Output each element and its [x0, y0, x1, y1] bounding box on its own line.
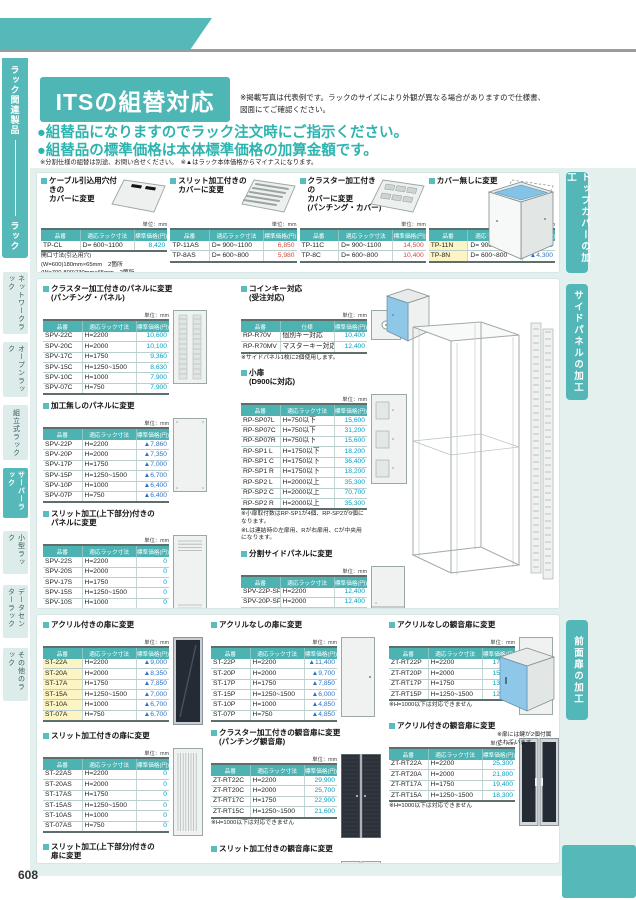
rack-size-cell: H=1750: [82, 460, 136, 470]
part-number-cell: RP-SP07R: [241, 436, 280, 446]
table-row: ST-10AH=1000▲6,700: [43, 700, 169, 710]
product-block: クラスター加工付きのカバーに変更(パンチング・カバー)単位：mm品番適応ラック寸…: [300, 177, 426, 263]
column-header: 適応ラック寸法: [428, 748, 482, 760]
bullet-square-icon: [43, 403, 49, 409]
part-number-cell: RP-SP2 L: [241, 478, 280, 488]
column-header: 標準価格(円): [393, 229, 426, 241]
unit-label: 単位：mm: [241, 567, 367, 575]
block-title-lines: スリット加工付きの観音扉に変更: [219, 845, 333, 854]
rack-size-cell: H=2000: [280, 597, 334, 607]
price-cell: 35,300: [334, 499, 367, 510]
rack-size-cell: H=750: [82, 821, 136, 832]
table-row: ZT-RT22AH=220025,300: [389, 760, 515, 770]
table-row: SPV-15SH=1250~15000: [43, 588, 169, 598]
front-door-section: アクリル付きの扉に変更単位：mm品番適応ラック寸法標準価格(円)ST-22AH=…: [36, 614, 560, 864]
part-number-cell: ST-22AS: [43, 770, 82, 780]
header-row: 品番適応ラック寸法標準価格(円): [300, 229, 426, 241]
bullet-square-icon: [241, 286, 247, 292]
unit-label: 単位：mm: [211, 755, 337, 763]
price-cell: ▲4,850: [304, 710, 337, 721]
rack-size-cell: H=1250~1500: [250, 690, 304, 700]
sidebar-item-label: ネットワークラック: [6, 275, 26, 331]
bullet-square-icon: [429, 178, 435, 184]
cabinet-front-view-image: [497, 645, 557, 728]
section-label-top-cover: トップカバーの加工: [566, 172, 588, 273]
part-number-cell: RP-SP2 R: [241, 499, 280, 510]
sidebar-item: ネットワークラック: [3, 272, 28, 334]
unit-label: 単位：mm: [43, 311, 169, 319]
column-header: 標準価格(円): [334, 576, 367, 588]
table-with-image: 単位：mm品番適応ラック寸法標準価格(円)ST-22AH=2200▲9,000S…: [43, 637, 201, 725]
table-row: SPV-20SH=20000: [43, 567, 169, 577]
cabinet-top-view-image: [487, 179, 555, 273]
bullet-square-icon: [43, 286, 49, 292]
column-header: 品番: [211, 647, 250, 659]
block-column: クラスター加工付きのパネルに変更(パンチング・パネル)単位：mm品番適応ラック寸…: [43, 285, 231, 609]
column-header: 標準価格(円): [304, 764, 337, 776]
part-number-cell: SPV-20S: [43, 567, 82, 577]
table-area: 単位：mm品番適応ラック寸法標準価格(円)ZT-RT22AH=220025,30…: [389, 738, 515, 811]
sidebar-item: サーバーラック: [3, 468, 28, 518]
price-cell: 21,800: [482, 770, 515, 780]
table-row: ST-10ASH=10000: [43, 811, 169, 821]
table-note: (W=600)180mm×65mm 2箇所: [41, 262, 167, 270]
front-door-columns: アクリル付きの扉に変更単位：mm品番適応ラック寸法標準価格(円)ST-22AH=…: [37, 615, 559, 864]
column-header: 品番: [241, 404, 280, 416]
price-cell: ▲7,850: [136, 679, 169, 689]
price-cell: ▲9,000: [136, 659, 169, 669]
bottom-right-accent: [562, 845, 636, 898]
table-row: RP-SP2 RH=2000以上35,300: [241, 499, 367, 510]
product-table: 品番適応ラック寸法標準価格(円)SPV-22P-SPH=220012,400SP…: [241, 575, 367, 609]
price-cell: ▲7,000: [136, 690, 169, 700]
part-number-cell: ST-22P: [211, 659, 250, 669]
price-cell: ▲6,700: [136, 710, 169, 721]
rack-size-cell: D= 900~1100: [339, 241, 393, 251]
table-row: SPV-10SH=10000: [43, 598, 169, 608]
rack-size-cell: H=2200: [82, 332, 136, 342]
top-cover-blocks: ケーブル引込用穴付きのカバーに変更単位：mm品番適応ラック寸法標準価格(円)TP…: [37, 173, 559, 273]
table-row: SPV-22P-SPH=220012,400: [241, 588, 367, 598]
table-note: (W=700-800)230mm×65mm 2箇所: [41, 270, 167, 273]
rack-size-cell: H=2000: [82, 567, 136, 577]
part-number-cell: TP-11N: [429, 241, 468, 251]
column-header: 適応ラック寸法: [82, 320, 136, 332]
price-cell: 0: [136, 780, 169, 790]
rack-size-cell: H=2000: [82, 450, 136, 460]
column-header: 品番: [300, 229, 339, 241]
part-number-cell: SPV-07P: [43, 491, 82, 502]
header-rule: [0, 49, 636, 52]
door-double-acrylic-image: [519, 738, 559, 826]
block-title: スリット加工(上下部分)付きの扉に変更: [43, 843, 201, 861]
column-header: 適応ラック寸法: [82, 647, 136, 659]
unit-label: 単位：mm: [43, 536, 169, 544]
column-header: 標準価格(円): [136, 758, 169, 770]
part-number-cell: RP-SP1 R: [241, 467, 280, 477]
part-number-cell: ZT-RT15C: [211, 807, 250, 818]
table-row: ZT-RT17CH=175022,900: [211, 796, 337, 806]
header-row: 品番適応ラック寸法標準価格(円): [389, 748, 515, 760]
table-row: ST-20ASH=20000: [43, 780, 169, 790]
rack-size-cell: H=1000: [82, 481, 136, 491]
table-area: 単位：mm品番適応ラック寸法標準価格(円)SPV-22P-SPH=220012,…: [241, 566, 367, 609]
part-number-cell: RP-R70MV: [241, 342, 280, 353]
table-row: SPV-10PH=1000▲6,400: [43, 481, 169, 491]
product-table: 品番適応ラック寸法標準価格(円)ST-22PH=2200▲11,400ST-20…: [211, 646, 337, 722]
bullet-square-icon: [43, 622, 49, 628]
front-cabinet-figure: ※扉には鍵が2個付属されています。: [497, 645, 557, 748]
part-number-cell: SPV-20P-SP: [241, 597, 280, 607]
table-area: 単位：mm品番適応ラック寸法標準価格(円)ZT-RT22CH=220029,90…: [211, 754, 337, 827]
key-note: ※扉には鍵が2個付属されています。: [497, 732, 557, 748]
price-cell: 9,360: [136, 352, 169, 362]
rack-size-cell: H=1250~1500: [82, 690, 136, 700]
part-number-cell: TP-11C: [300, 241, 339, 251]
block-title-lines: アクリル付きの扉に変更: [51, 621, 134, 630]
column-header: 品番: [241, 320, 280, 332]
rack-size-cell: D= 600~800: [209, 251, 263, 262]
rack-size-cell: H=750: [82, 710, 136, 721]
table-row: RP-SP1 LH=1750以下18,200: [241, 447, 367, 457]
column-header: 品番: [43, 545, 82, 557]
rack-size-cell: H=2000以上: [280, 478, 334, 488]
part-number-cell: SPV-22P-SP: [241, 588, 280, 598]
rack-size-cell: H=2000: [82, 669, 136, 679]
column-header: 標準価格(円): [304, 647, 337, 659]
table-row: ST-07PH=750▲4,850: [211, 710, 337, 721]
block-title-line: (パンチング・パネル): [51, 294, 172, 303]
block-title-line: 加工無しのパネルに変更: [51, 402, 135, 411]
table-area: 単位：mm品番適応ラック寸法標準価格(円)ST-22ASH=22000ST-20…: [43, 748, 169, 833]
bullet-square-icon: [300, 178, 306, 184]
rack-size-cell: H=2200: [428, 760, 482, 770]
price-cell: 10,100: [136, 342, 169, 352]
rack-size-cell: H=1250~1500: [428, 690, 482, 701]
column-header: 適応ラック寸法: [82, 428, 136, 440]
price-cell: 19,400: [482, 780, 515, 790]
table-row: ST-10PH=1000▲4,850: [211, 700, 337, 710]
price-cell: 15,600: [334, 436, 367, 446]
bullet-square-icon: [389, 622, 395, 628]
bullet-square-icon: [241, 370, 247, 376]
section-label-text: トップカバーの加工: [563, 172, 591, 273]
part-number-cell: ZT-RT17A: [389, 780, 428, 790]
rack-size-cell: H=2200: [250, 659, 304, 669]
header-row: 品番適応ラック寸法標準価格(円): [43, 428, 169, 440]
table-row: ST-17PH=1750▲7,850: [211, 679, 337, 689]
table-row: ZT-RT20AH=200021,800: [389, 770, 515, 780]
part-number-cell: SPV-22C: [43, 332, 82, 342]
sidebar-item-label: データセンターラック: [6, 588, 26, 635]
table-row: SPV-20CH=200010,100: [43, 342, 169, 352]
price-cell: 18,300: [482, 791, 515, 802]
part-number-cell: ST-20AS: [43, 780, 82, 790]
rack-size-cell: H=2200: [428, 659, 482, 669]
table-row: ST-15PH=1250~1500▲6,000: [211, 690, 337, 700]
block-title-line: パネルに変更: [51, 519, 155, 528]
rack-size-cell: H=1000: [82, 373, 136, 383]
unit-label: 単位：mm: [43, 749, 169, 757]
product-block: アクリル付きの扉に変更単位：mm品番適応ラック寸法標準価格(円)ST-22AH=…: [43, 621, 201, 725]
block-title: アクリルなしの観音扉に変更: [389, 621, 539, 630]
block-title-line: 分割サイドパネルに変更: [249, 550, 333, 559]
price-cell: ▲7,860: [136, 440, 169, 450]
table-row: SPV-17CH=17509,360: [43, 352, 169, 362]
table-row: SPV-07PH=750▲6,400: [43, 491, 169, 502]
sidebar-item-label: サーバーラック: [6, 471, 26, 515]
header-corner-tab: [0, 18, 212, 50]
unit-label: 単位：mm: [300, 220, 426, 228]
header-row: 品番適応ラック寸法標準価格(円): [43, 758, 169, 770]
table-row: ZT-RT15AH=1250~150018,300: [389, 791, 515, 802]
sidebar-divider: [15, 140, 16, 216]
table-row: ST-20AH=2000▲8,350: [43, 669, 169, 679]
table-area: 単位：mm品番適応ラック寸法標準価格(円)TP-11ASD= 900~11006…: [170, 220, 296, 263]
header-row: 品番仕様標準価格(円): [241, 320, 367, 332]
part-number-cell: ST-07AS: [43, 821, 82, 832]
table-area: 単位：mm品番適応ラック寸法標準価格(円)SPV-22CH=220010,600…: [43, 310, 169, 395]
column-header: 標準価格(円): [334, 404, 367, 416]
table-row: RP-SP07RH=750以下15,600: [241, 436, 367, 446]
rack-size-cell: H=2200: [82, 440, 136, 450]
product-table: 品番適応ラック寸法標準価格(円)TP-11ASD= 900~11006,850T…: [170, 228, 296, 263]
rack-size-cell: H=1750: [428, 780, 482, 790]
block-title: クラスター加工付きの観音扉に変更(パンチング観音扉): [211, 729, 379, 747]
rack-size-cell: H=750: [250, 710, 304, 721]
price-cell: 0: [136, 770, 169, 780]
price-cell: 8,630: [136, 363, 169, 373]
block-column: アクリル付きの扉に変更単位：mm品番適応ラック寸法標準価格(円)ST-22AH=…: [43, 621, 201, 864]
rack-size-cell: H=1250~1500: [82, 801, 136, 811]
door-slit-image: [173, 748, 203, 836]
sidebar-item-label: 組立式ラック: [11, 409, 21, 457]
rack-size-cell: H=1750以下: [280, 447, 334, 457]
product-block: アクリルなしの扉に変更単位：mm品番適応ラック寸法標準価格(円)ST-22PH=…: [211, 621, 379, 722]
side-panel-section: クラスター加工付きのパネルに変更(パンチング・パネル)単位：mm品番適応ラック寸…: [36, 278, 560, 609]
rack-size-cell: D= 900~1100: [209, 241, 263, 251]
column-header: 適応ラック寸法: [209, 229, 263, 241]
sidebar-item: その他のラック: [3, 648, 28, 701]
table-row: SPV-20PH=2000▲7,350: [43, 450, 169, 460]
part-number-cell: ST-07P: [211, 710, 250, 721]
block-title-lines: アクリル付きの観音扉に変更: [397, 722, 495, 731]
price-cell: 22,900: [304, 796, 337, 806]
rack-size-cell: H=1000: [82, 700, 136, 710]
rack-size-cell: H=750: [82, 383, 136, 394]
product-table: 品番適応ラック寸法標準価格(円)SPV-22CH=220010,600SPV-2…: [43, 319, 169, 395]
price-cell: 0: [136, 801, 169, 811]
photo-note: ※掲載写真は代表例です。ラックのサイズにより外観が異なる場合がありますので仕様書…: [240, 92, 545, 115]
table-row: ST-20PH=2000▲9,700: [211, 669, 337, 679]
product-table: 品番適応ラック寸法標準価格(円)ST-22ASH=22000ST-20ASH=2…: [43, 757, 169, 833]
table-row: SPV-22CH=220010,600: [43, 332, 169, 342]
bullet-square-icon: [43, 844, 49, 850]
rack-size-cell: H=2200: [280, 588, 334, 598]
price-cell: 31,200: [334, 426, 367, 436]
table-row: ST-15ASH=1250~15000: [43, 801, 169, 811]
rack-size-cell: H=2000: [250, 786, 304, 796]
rack-size-cell: H=2000: [428, 669, 482, 679]
sidebar-item-label: 小型ラック: [6, 534, 26, 571]
table-row: RP-SP2 LH=2000以上35,300: [241, 478, 367, 488]
header-row: 品番適応ラック寸法標準価格(円): [43, 647, 169, 659]
table-row: RP-SP07CH=750以下31,200: [241, 426, 367, 436]
part-number-cell: TP-11AS: [170, 241, 209, 251]
part-number-cell: RP-SP07C: [241, 426, 280, 436]
column-header: 標準価格(円): [264, 229, 297, 241]
table-row: ST-07ASH=7500: [43, 821, 169, 832]
cover-cluster-image: [370, 177, 426, 215]
block-title-lines: 小扉(D900に対応): [249, 369, 295, 387]
product-table: 品番適応ラック寸法標準価格(円)TP-11CD= 900~110014,500T…: [300, 228, 426, 263]
table-note: ※H=1000以下は対応できません: [389, 803, 515, 811]
table-row: RP-SP07LH=750以下15,600: [241, 416, 367, 426]
sidebar-tab-rack: ラック関連製品 ラック: [2, 58, 28, 258]
price-cell: ▲9,700: [304, 669, 337, 679]
price-cell: ▲11,400: [304, 659, 337, 669]
fine-note: ※分割仕様の組替は別途、お問い合せください。 ※▲はラック本体価格からマイナスに…: [40, 157, 317, 166]
column-header: 品番: [43, 320, 82, 332]
price-cell: 12,400: [334, 597, 367, 607]
table-row: SPV-15CH=1250~15008,630: [43, 363, 169, 373]
price-cell: 0: [136, 588, 169, 598]
bullet-square-icon: [41, 178, 47, 184]
product-block: クラスター加工付きの観音扉に変更(パンチング観音扉)単位：mm品番適応ラック寸法…: [211, 729, 379, 838]
page-title: ITSの組替対応: [40, 77, 230, 122]
part-number-cell: SPV-17P: [43, 460, 82, 470]
rack-size-cell: D= 600~800: [339, 251, 393, 262]
top-cover-section: ケーブル引込用穴付きのカバーに変更単位：mm品番適応ラック寸法標準価格(円)TP…: [36, 172, 560, 273]
block-title-lines: 加工無しのパネルに変更: [51, 402, 135, 411]
header-row: 品番適応ラック寸法標準価格(円): [170, 229, 296, 241]
cover-hole-image: [111, 177, 167, 215]
price-cell: ▲6,400: [136, 481, 169, 491]
rack-size-cell: H=1750: [82, 679, 136, 689]
rack-size-cell: H=750以下: [280, 416, 334, 426]
table-row: SPV-17PH=1750▲7,000: [43, 460, 169, 470]
table-row: ST-07AH=750▲6,700: [43, 710, 169, 721]
price-cell: 29,900: [304, 776, 337, 786]
bullet-square-icon: [170, 178, 176, 184]
block-column: アクリルなしの扉に変更単位：mm品番適応ラック寸法標準価格(円)ST-22PH=…: [211, 621, 379, 864]
block-title-line: スリット加工付きの扉に変更: [51, 732, 150, 741]
bullet-square-icon: [211, 846, 217, 852]
rack-size-cell: H=1750: [280, 608, 334, 609]
table-note: ※H=1000以下は対応できません: [211, 820, 337, 828]
price-cell: ▲6,700: [136, 471, 169, 481]
sidebar-current-label: ラック: [9, 221, 22, 251]
price-cell: 18,200: [334, 467, 367, 477]
table-row: ZT-RT15CH=1250~150021,600: [211, 807, 337, 818]
rack-size-cell: H=1250~1500: [82, 588, 136, 598]
part-number-cell: ST-10P: [211, 700, 250, 710]
table-row: ST-15AH=1250~1500▲7,000: [43, 690, 169, 700]
rack-size-cell: H=1000: [82, 598, 136, 608]
part-number-cell: ST-15AS: [43, 801, 82, 811]
table-note: ※小扉取付数はRP-SP1が4個、RP-SP2が9個になります。: [241, 511, 367, 526]
table-row: SPV-20P-SPH=200012,400: [241, 597, 367, 607]
block-title: アクリルなしの扉に変更: [211, 621, 379, 630]
bullet-square-icon: [389, 723, 395, 729]
unit-label: 単位：mm: [170, 220, 296, 228]
rack-size-cell: H=1250~1500: [82, 363, 136, 373]
part-number-cell: TP-8C: [300, 251, 339, 262]
table-row: ST-17ASH=17500: [43, 790, 169, 800]
rack-size-cell: H=2000以上: [280, 488, 334, 498]
table-row: TP-11CD= 900~110014,500: [300, 241, 426, 251]
block-title-line: (受注対応): [249, 294, 302, 303]
price-cell: 10,600: [136, 332, 169, 342]
column-header: 標準価格(円): [136, 647, 169, 659]
header-row: 品番適応ラック寸法標準価格(円): [43, 545, 169, 557]
price-cell: 0: [136, 567, 169, 577]
table-with-image: 単位：mm品番適応ラック寸法標準価格(円)ST-22PH=2200▲11,400…: [211, 637, 379, 722]
price-cell: 12,400: [334, 342, 367, 353]
part-number-cell: SPV-10P: [43, 481, 82, 491]
part-number-cell: RP-SP1 L: [241, 447, 280, 457]
block-title-lines: クラスター加工付きの観音扉に変更(パンチング観音扉): [219, 729, 340, 747]
cover-slit-image: [241, 177, 297, 215]
product-block: スリット加工付きの扉に変更単位：mm品番適応ラック寸法標準価格(円)ST-22A…: [43, 732, 201, 836]
header-row: 品番適応ラック寸法標準価格(円): [211, 764, 337, 776]
column-header: 適応ラック寸法: [339, 229, 393, 241]
product-block: クラスター加工付きのパネルに変更(パンチング・パネル)単位：mm品番適応ラック寸…: [43, 285, 231, 395]
rack-size-cell: H=2200: [250, 776, 304, 786]
block-title-line: スリット加工付きの観音扉に変更: [219, 845, 333, 854]
rack-size-cell: H=1250~1500: [428, 791, 482, 802]
part-number-cell: ST-15A: [43, 690, 82, 700]
rack-size-cell: H=750: [82, 491, 136, 502]
header-row: 品番適応ラック寸法標準価格(円): [241, 404, 367, 416]
catalog-page: { "page": { "number": "608" }, "sidebar"…: [0, 0, 636, 900]
unit-label: 単位：mm: [43, 419, 169, 427]
rack-size-cell: H=1750: [250, 679, 304, 689]
block-title: アクリル付きの扉に変更: [43, 621, 201, 630]
table-with-image: 単位：mm品番適応ラック寸法標準価格(円)ST-22ASH=22000ST-20…: [43, 748, 201, 836]
part-number-cell: RP-SP2 C: [241, 488, 280, 498]
column-header: 品番: [429, 229, 468, 241]
column-header: 品番: [211, 764, 250, 776]
column-header: 適応ラック寸法: [428, 647, 482, 659]
table-area: 単位：mm品番適応ラック寸法標準価格(円)ST-22AH=2200▲9,000S…: [43, 637, 169, 722]
part-number-cell: ST-15P: [211, 690, 250, 700]
price-cell: 7,900: [136, 373, 169, 383]
table-row: SPV-10CH=10007,900: [43, 373, 169, 383]
price-cell: 7,900: [136, 383, 169, 394]
rack-size-cell: 個別キー対応: [280, 332, 334, 342]
block-title-line: アクリル付きの扉に変更: [51, 621, 134, 630]
door-plain-image: [341, 637, 375, 717]
table-row: SPV-17P-SPH=175012,400: [241, 608, 367, 609]
door-double-mesh-image: [341, 754, 381, 838]
rack-size-cell: H=2000: [250, 669, 304, 679]
bullet-line1: ●組替品になりますのでラック注文時にご指示ください。: [37, 124, 408, 142]
price-cell: 25,700: [304, 786, 337, 796]
part-number-cell: ST-22A: [43, 659, 82, 669]
price-cell: 0: [136, 811, 169, 821]
section-label-text: 前面扉の加工: [570, 636, 584, 705]
rack-size-cell: H=1250~1500: [82, 471, 136, 481]
header-row: 品番適応ラック寸法標準価格(円): [241, 576, 367, 588]
price-cell: ▲6,000: [304, 690, 337, 700]
unit-label: 単位：mm: [43, 638, 169, 646]
part-number-cell: ZT-RT20C: [211, 786, 250, 796]
part-number-cell: ST-17P: [211, 679, 250, 689]
price-cell: 0: [136, 598, 169, 608]
header-row: 品番適応ラック寸法標準価格(円): [43, 320, 169, 332]
column-header: 適応ラック寸法: [80, 229, 134, 241]
